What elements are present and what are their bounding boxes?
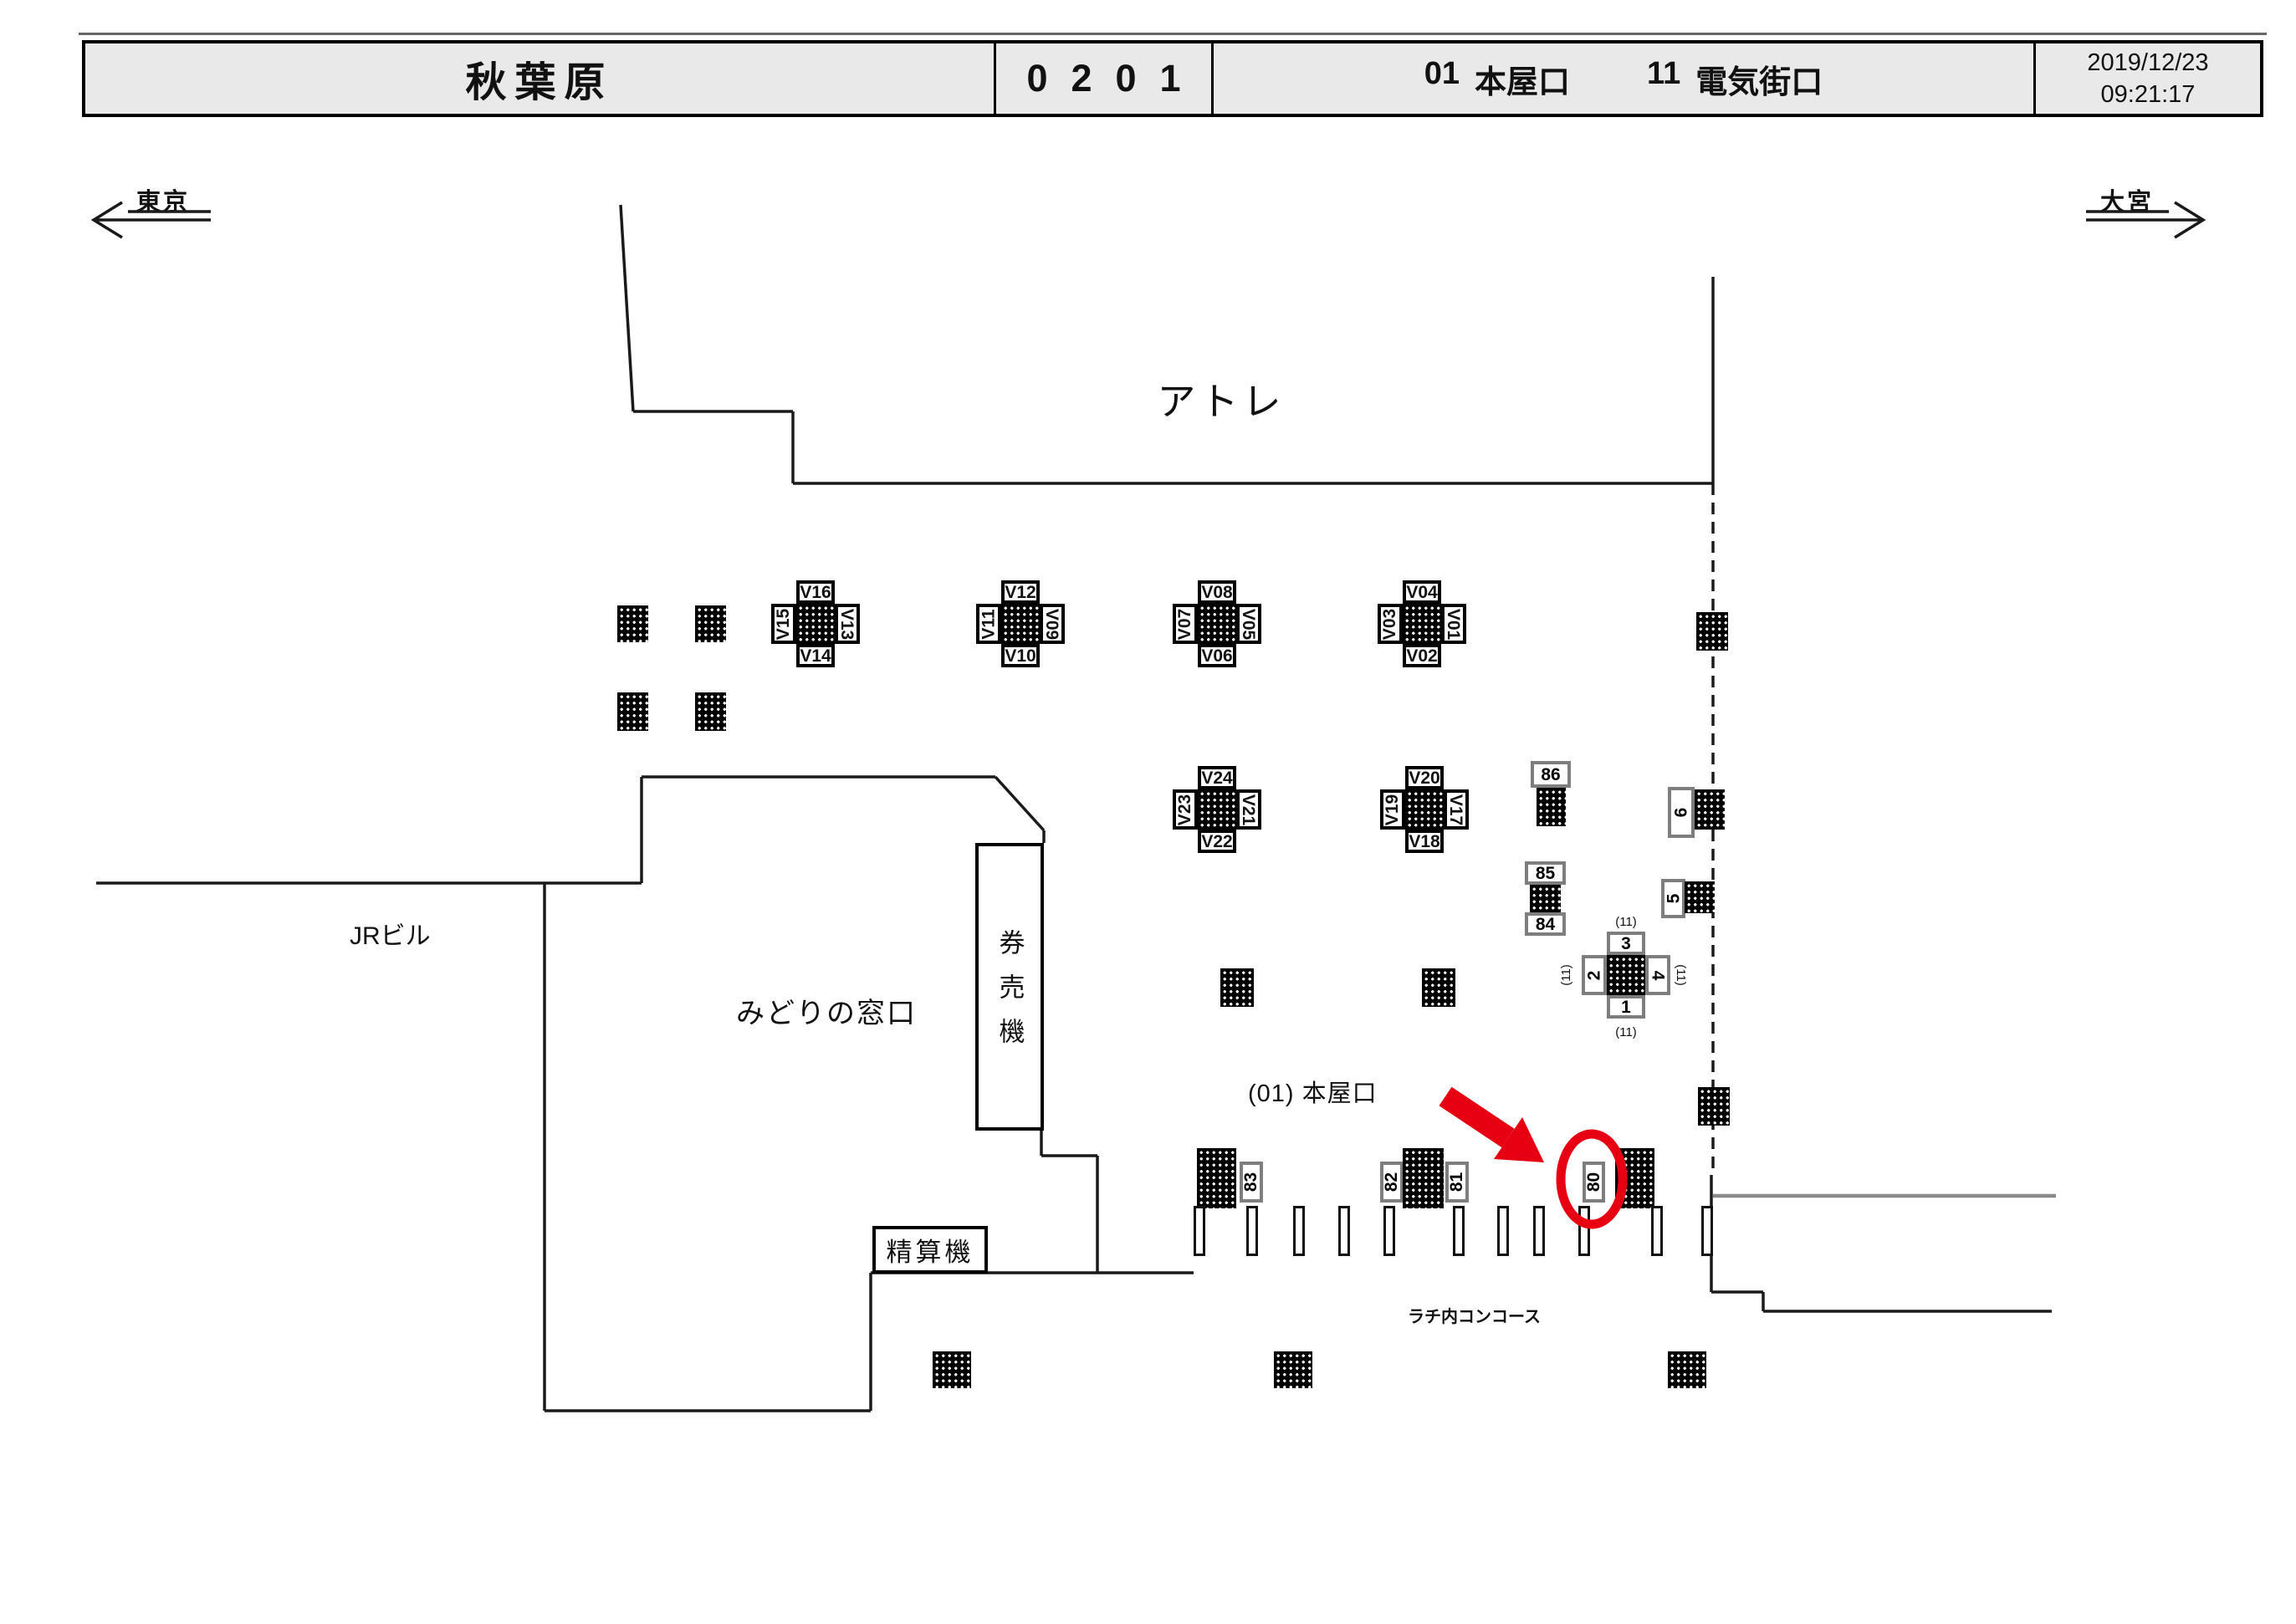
highlight-arrow-shaft: [1445, 1096, 1508, 1138]
highlight-circle: [1561, 1134, 1623, 1224]
highlight-layer: [0, 0, 2296, 1624]
station-layout-screen: { "header": { "station": "秋葉原", "station…: [0, 0, 2296, 1624]
